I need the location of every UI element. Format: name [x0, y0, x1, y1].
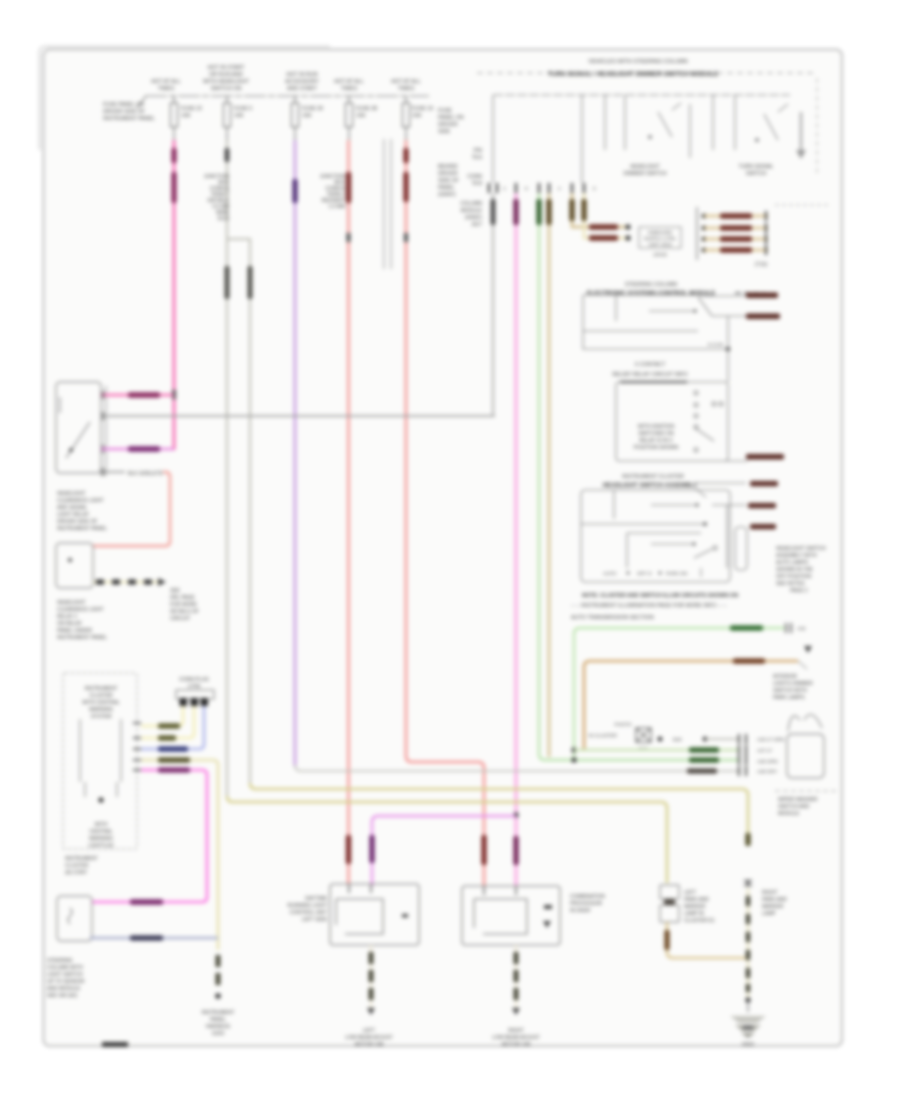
svg-text:ASSEMBLY WITH: ASSEMBLY WITH — [776, 553, 817, 559]
svg-text:15A: 15A — [356, 113, 366, 119]
svg-text:G502: G502 — [742, 1042, 754, 1048]
svg-text:HEADLIGHT: HEADLIGHT — [57, 600, 86, 606]
svg-text:CLEARANCE LIGHT: CLEARANCE LIGHT — [57, 498, 104, 504]
svg-text:BLK S/DELETE: BLK S/DELETE — [128, 471, 164, 477]
svg-text:MARKER: MARKER — [762, 904, 784, 910]
svg-text:STEERING: STEERING — [47, 958, 73, 964]
svg-text:8: 8 — [525, 186, 528, 191]
svg-text:SYSTEM: SYSTEM — [91, 714, 112, 720]
svg-text:SIDE: SIDE — [438, 129, 451, 135]
svg-text:ONBOARD: ONBOARD — [648, 230, 673, 236]
svg-text:SEE NOTES: SEE NOTES — [776, 581, 805, 587]
svg-text:VEHICLES WITH STEERING COLUMN: VEHICLES WITH STEERING COLUMN — [588, 59, 687, 65]
svg-text:WITH HEADLIGHT: WITH HEADLIGHT — [203, 79, 250, 85]
svg-text:CONTROL UNIT: CONTROL UNIT — [290, 910, 327, 916]
svg-text:MARKER: MARKER — [684, 904, 706, 910]
svg-text:PARK AND: PARK AND — [762, 897, 787, 903]
svg-text:PROCESSOR: PROCESSOR — [570, 901, 602, 907]
svg-text:DRIVER SIDE OF: DRIVER SIDE OF — [57, 519, 97, 525]
svg-text:PHOTO: PHOTO — [615, 722, 632, 728]
svg-text:LIGHTS DIMMER: LIGHTS DIMMER — [773, 681, 813, 687]
svg-text:COLUMN: COLUMN — [460, 201, 482, 207]
svg-text:IN CLUSTER: IN CLUSTER — [588, 733, 617, 739]
svg-text:WITH IGNITION: WITH IGNITION — [638, 424, 675, 430]
svg-text:CLUSTER: CLUSTER — [89, 693, 113, 699]
svg-text:SWITCH: SWITCH — [746, 171, 767, 177]
svg-text:HOT AT ALL: HOT AT ALL — [151, 79, 181, 85]
svg-text:SUPPLY CTRL: SUPPLY CTRL — [644, 236, 677, 242]
svg-text:INSTRUMENT PANEL: INSTRUMENT PANEL — [57, 635, 107, 641]
svg-text:SHOWN IN THE: SHOWN IN THE — [776, 567, 814, 573]
svg-text:IN DASH: IN DASH — [570, 908, 591, 914]
svg-text:SWITCHED ON: SWITCHED ON — [638, 431, 674, 437]
svg-text:DRIVER SIDE OF: DRIVER SIDE OF — [103, 109, 145, 115]
svg-text:(T10): (T10) — [755, 262, 768, 268]
svg-text:AND SIGNAL: AND SIGNAL — [57, 505, 88, 511]
svg-text:INSTRUMENT: INSTRUMENT — [85, 686, 118, 692]
svg-text:2: 2 — [503, 186, 506, 191]
svg-text:A32: A32 — [797, 626, 806, 632]
svg-text:WARNING: WARNING — [89, 707, 113, 713]
svg-text:INSTRUMENT CLUSTER: INSTRUMENT CLUSTER — [622, 474, 684, 480]
svg-text:CLEARANCE LIGHT: CLEARANCE LIGHT — [57, 607, 104, 613]
svg-text:HOT IN START: HOT IN START — [208, 65, 246, 71]
svg-text:LAMP IN: LAMP IN — [684, 911, 704, 917]
svg-text:WIPER WASHER: WIPER WASHER — [778, 797, 818, 803]
svg-text:INSTRUMENT PANEL: INSTRUMENT PANEL — [57, 526, 107, 532]
svg-text:GND: GND — [743, 1025, 754, 1030]
svg-text:(J519): (J519) — [653, 252, 667, 258]
svg-text:15A: 15A — [412, 113, 422, 119]
svg-text:SWITCH ON: SWITCH ON — [211, 86, 242, 92]
svg-text:SEE SW (A2): SEE SW (A2) — [47, 993, 78, 999]
svg-text:DRIVER: DRIVER — [438, 122, 458, 128]
svg-text:PANEL: PANEL — [210, 1017, 226, 1023]
svg-text:LIGHT RELAY: LIGHT RELAY — [57, 512, 90, 518]
svg-text:FUSE 38: FUSE 38 — [356, 106, 377, 112]
svg-text:FUSE PANEL ON: FUSE PANEL ON — [103, 102, 144, 108]
svg-text:WITH CENTRAL: WITH CENTRAL — [82, 700, 120, 706]
svg-text:MOTOR V48: MOTOR V48 — [355, 1042, 384, 1048]
svg-text:MOTOR V49: MOTOR V49 — [502, 1042, 531, 1048]
svg-text:CLUSTER E1: CLUSTER E1 — [684, 918, 715, 924]
svg-text:LOW BEAM ADJUST: LOW BEAM ADJUST — [492, 1035, 540, 1041]
svg-text:POSITION SHOWN: POSITION SHOWN — [634, 445, 679, 451]
svg-text:PANEL: PANEL — [438, 185, 455, 191]
svg-text:CENTRAL: CENTRAL — [89, 829, 113, 835]
svg-text:ELECTRONIC SYSTEMS CONTROL MOD: ELECTRONIC SYSTEMS CONTROL MODULE — [587, 291, 715, 297]
svg-text:AUTO TRANSMISSION SECTION: AUTO TRANSMISSION SECTION — [571, 615, 654, 621]
svg-text:B29: B29 — [673, 737, 682, 743]
svg-text:FUSE 22: FUSE 22 — [181, 106, 202, 112]
svg-text:LEFT: LEFT — [684, 890, 696, 896]
svg-text:LIGHT SWITCH: LIGHT SWITCH — [47, 972, 83, 978]
svg-text:DETAILS OF: DETAILS OF — [170, 609, 199, 615]
svg-text:SWITCH AND: SWITCH AND — [778, 804, 810, 810]
svg-text:INSTRUMENT: INSTRUMENT — [202, 1010, 235, 1016]
svg-text:HOT AT ALL: HOT AT ALL — [334, 79, 364, 85]
svg-text:X CONTACT: X CONTACT — [635, 362, 666, 368]
svg-text:TIMES: TIMES — [398, 86, 415, 92]
svg-text:ON RELAY: ON RELAY — [57, 621, 83, 627]
svg-text:UP TO SENSOR: UP TO SENSOR — [47, 979, 85, 985]
svg-text:S213: S213 — [217, 216, 229, 222]
svg-text:FUSE 30: FUSE 30 — [302, 106, 323, 112]
svg-text:DRIVER: DRIVER — [438, 171, 458, 177]
svg-text:INTERIOR: INTERIOR — [773, 674, 797, 680]
svg-text:RIGHT: RIGHT — [762, 890, 778, 896]
svg-text:INSTRUMENT PANEL: INSTRUMENT PANEL — [103, 116, 155, 122]
svg-text:PANEL UNDER: PANEL UNDER — [57, 628, 92, 634]
svg-text:-- -- INSTRUMENT ILLUMINATION: -- -- INSTRUMENT ILLUMINATION PAGE FOR M… — [571, 603, 727, 609]
svg-text:AND START: AND START — [287, 86, 318, 92]
svg-text:HEADLIGHT: HEADLIGHT — [630, 164, 661, 170]
svg-text:AND MODULE: AND MODULE — [47, 986, 81, 992]
svg-text:HOT IN RUN: HOT IN RUN — [286, 72, 317, 78]
svg-text:OFF O: OFF O — [637, 571, 652, 577]
svg-text:A26 GRN: A26 GRN — [757, 759, 778, 765]
svg-text:DRL PAGE: DRL PAGE — [170, 595, 195, 601]
svg-text:LIGHTS A2: LIGHTS A2 — [88, 843, 114, 849]
svg-text:DAYTIME: DAYTIME — [305, 896, 328, 902]
svg-text:LOW BEAM ADJUST: LOW BEAM ADJUST — [345, 1035, 393, 1041]
svg-text:ACCESSORY: ACCESSORY — [285, 79, 319, 85]
svg-text:CLUSTER: CLUSTER — [65, 863, 89, 869]
svg-text:COMBINATION: COMBINATION — [570, 894, 605, 900]
svg-text:T8 B: T8 B — [471, 181, 482, 187]
svg-text:LEFT: LEFT — [363, 1028, 375, 1034]
svg-text:LEFT SIDE: LEFT SIDE — [302, 917, 328, 923]
svg-text:4: 4 — [558, 186, 561, 191]
svg-text:RIGHT: RIGHT — [508, 1028, 524, 1034]
svg-text:15A: 15A — [302, 113, 312, 119]
svg-text:RELIEF RELAY CIRCUIT INFO: RELIEF RELAY CIRCUIT INFO — [612, 372, 687, 378]
svg-text:HEADLIGHT: HEADLIGHT — [57, 491, 86, 497]
svg-text:(A) CONT: (A) CONT — [65, 870, 87, 876]
svg-text:OR RUN AND: OR RUN AND — [209, 72, 243, 78]
svg-text:1.0 MM: 1.0 MM — [328, 204, 345, 210]
svg-text:3 PIN: 3 PIN — [188, 684, 201, 690]
svg-text:CIRCUIT: CIRCUIT — [170, 616, 190, 622]
svg-text:6: 6 — [593, 186, 596, 191]
svg-text:RUNNING LIGHT: RUNNING LIGHT — [288, 903, 327, 909]
svg-text:TIMES: TIMES — [158, 86, 175, 92]
svg-text:HEADLIGHT SWITCH: HEADLIGHT SWITCH — [776, 546, 826, 552]
svg-text:A20 LT GRN: A20 LT GRN — [757, 737, 785, 743]
svg-text:10A: 10A — [234, 113, 244, 119]
svg-text:PARK LAMPS: PARK LAMPS — [773, 695, 805, 701]
svg-text:G203: G203 — [212, 1031, 224, 1037]
svg-text:FOR MORE: FOR MORE — [170, 602, 198, 608]
svg-text:AUTO LAMPS: AUTO LAMPS — [776, 560, 809, 566]
svg-text:BEHIND: BEHIND — [438, 164, 458, 170]
svg-text:OFF POSITION: OFF POSITION — [776, 574, 812, 580]
svg-text:PARK ON: PARK ON — [666, 571, 688, 577]
svg-text:SIDE OF: SIDE OF — [438, 178, 459, 184]
svg-text:(GRAY): (GRAY) — [465, 215, 482, 221]
svg-text:SEE: SEE — [170, 588, 181, 594]
svg-text:10A: 10A — [181, 113, 191, 119]
svg-text:NOTE: CLUSTER AND SWITCH ILLUM: NOTE: CLUSTER AND SWITCH ILLUM CIRCUITS … — [582, 593, 738, 599]
svg-text:PANEL ON: PANEL ON — [438, 115, 464, 121]
svg-text:SWITCH WITH: SWITCH WITH — [773, 688, 807, 694]
svg-text:TURN SIGNAL / HEADLIGHT DIMMER: TURN SIGNAL / HEADLIGHT DIMMER SWITCH MO… — [548, 71, 719, 78]
svg-text:PAGE 2: PAGE 2 — [790, 588, 808, 594]
svg-text:AUTO: AUTO — [603, 571, 617, 577]
svg-text:INSTRUMENT: INSTRUMENT — [65, 856, 98, 862]
svg-text:TURN SIGNAL: TURN SIGNAL — [739, 164, 774, 170]
svg-text:FUSE 5: FUSE 5 — [234, 106, 252, 112]
svg-text:PIN: PIN — [474, 148, 483, 154]
svg-text:COLUMN WITH: COLUMN WITH — [47, 965, 83, 971]
svg-text:TIMES: TIMES — [341, 86, 358, 92]
svg-text:A27 LT: A27 LT — [757, 748, 772, 754]
svg-text:K-CAN: K-CAN — [708, 342, 723, 348]
svg-text:HEADLIGHT SWITCH ASSEMBLY: HEADLIGHT SWITCH ASSEMBLY — [603, 483, 698, 489]
svg-text:DIMMER SWITCH: DIMMER SWITCH — [624, 171, 667, 177]
svg-text:CONN: CONN — [467, 174, 482, 180]
svg-text:LAMP: LAMP — [762, 911, 776, 917]
svg-text:RELAY IS IN X: RELAY IS IN X — [639, 438, 673, 444]
svg-text:PARK AND: PARK AND — [684, 897, 709, 903]
svg-text:HOT AT ALL: HOT AT ALL — [391, 79, 421, 85]
svg-text:FUSE: FUSE — [438, 108, 452, 114]
svg-text:RELAY 2: RELAY 2 — [57, 614, 77, 620]
svg-text:WARNING: WARNING — [89, 836, 113, 842]
svg-text:WITH: WITH — [95, 822, 108, 828]
svg-text:MODULE: MODULE — [461, 208, 483, 214]
svg-text:(GRAY): (GRAY) — [438, 192, 456, 198]
svg-text:MODULE: MODULE — [778, 811, 800, 817]
svg-text:J527: J527 — [471, 222, 482, 228]
svg-text:UNIT J519: UNIT J519 — [649, 242, 672, 248]
svg-text:FUSE 19: FUSE 19 — [412, 106, 433, 112]
svg-text:T8 A: T8 A — [472, 155, 483, 161]
svg-text:STEERING COLUMN: STEERING COLUMN — [625, 282, 678, 288]
svg-text:HARNESS: HARNESS — [206, 1024, 231, 1030]
svg-text:A28 GRY: A28 GRY — [757, 769, 778, 775]
svg-text:CONN PLUG: CONN PLUG — [179, 677, 209, 683]
